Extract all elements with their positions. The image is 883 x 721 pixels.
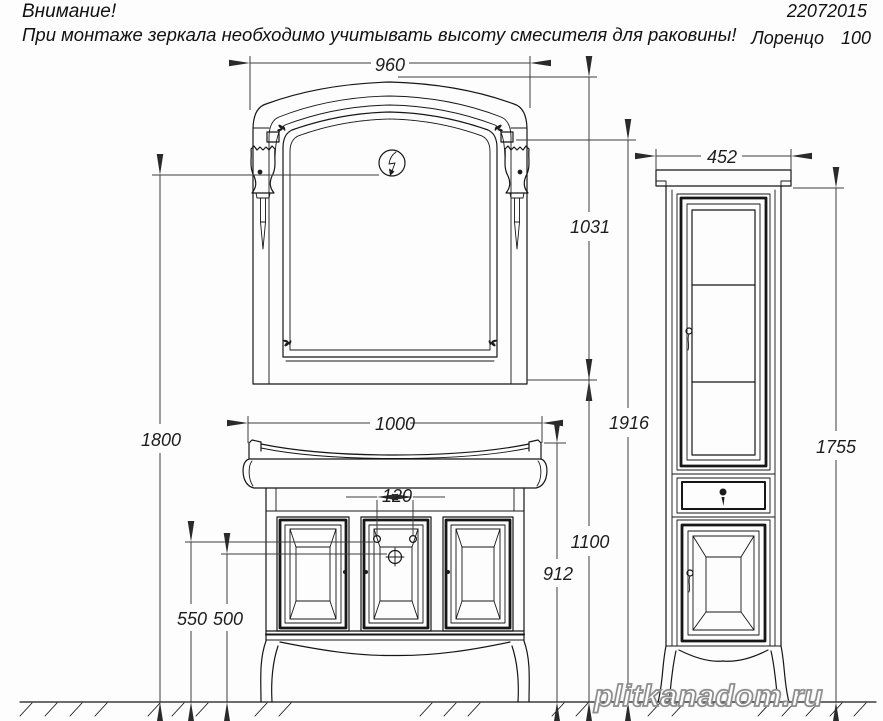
dim-label-912: 912 [543, 564, 573, 584]
sconce-lamp-left [251, 132, 279, 249]
vanity-door-middle [361, 517, 431, 631]
vanity-door-right [443, 517, 513, 631]
dim-label-1000: 1000 [375, 414, 415, 434]
faucet-hole-right [410, 536, 417, 543]
dim-label-550: 550 [177, 609, 207, 629]
dim-cabinet-height: 1755 [793, 188, 857, 702]
leaf-ornament [283, 339, 292, 347]
cabinet-glass-door [677, 194, 770, 470]
dim-cabinet-width: 452 [656, 147, 791, 170]
door-handle-dot [446, 570, 450, 574]
dim-label-1100: 1100 [571, 532, 610, 552]
dimension-annotations: 960 1031 1100 [141, 55, 857, 702]
dim-mirror-bottom-height: 1100 [571, 380, 610, 702]
dim-label-1755: 1755 [816, 437, 857, 457]
drawer-knob [720, 489, 727, 496]
dim-label-120: 120 [382, 486, 412, 506]
electric-connection-symbol [379, 150, 405, 176]
leaf-ornament [488, 339, 497, 347]
sconce-lamp-right [501, 132, 529, 249]
cabinet-drawer [677, 478, 770, 513]
vanity-unit [243, 440, 547, 702]
watermark: plitkanadom.ru [594, 678, 823, 714]
drawing-canvas: 960 1031 1100 [0, 0, 883, 721]
dim-vanity-width: 1000 [248, 414, 542, 443]
cabinet-lower-door [677, 520, 770, 646]
vanity-door-left [277, 517, 349, 631]
tall-cabinet [656, 170, 791, 702]
dim-label-452: 452 [707, 147, 737, 167]
dim-label-960: 960 [375, 55, 405, 75]
mirror [253, 82, 527, 384]
door-handle-dot [364, 570, 368, 574]
center-mark [386, 548, 404, 566]
dim-vanity-height: 912 [543, 443, 573, 702]
door-handle-dot [343, 570, 347, 574]
technical-drawing-page: Внимание! При монтаже зеркала необходимо… [0, 0, 883, 721]
dim-label-500: 500 [213, 609, 243, 629]
dim-label-1800: 1800 [141, 430, 181, 450]
dim-hole-height-left: 550 [177, 542, 373, 702]
dim-label-1916: 1916 [609, 413, 650, 433]
dim-label-1031: 1031 [570, 217, 610, 237]
